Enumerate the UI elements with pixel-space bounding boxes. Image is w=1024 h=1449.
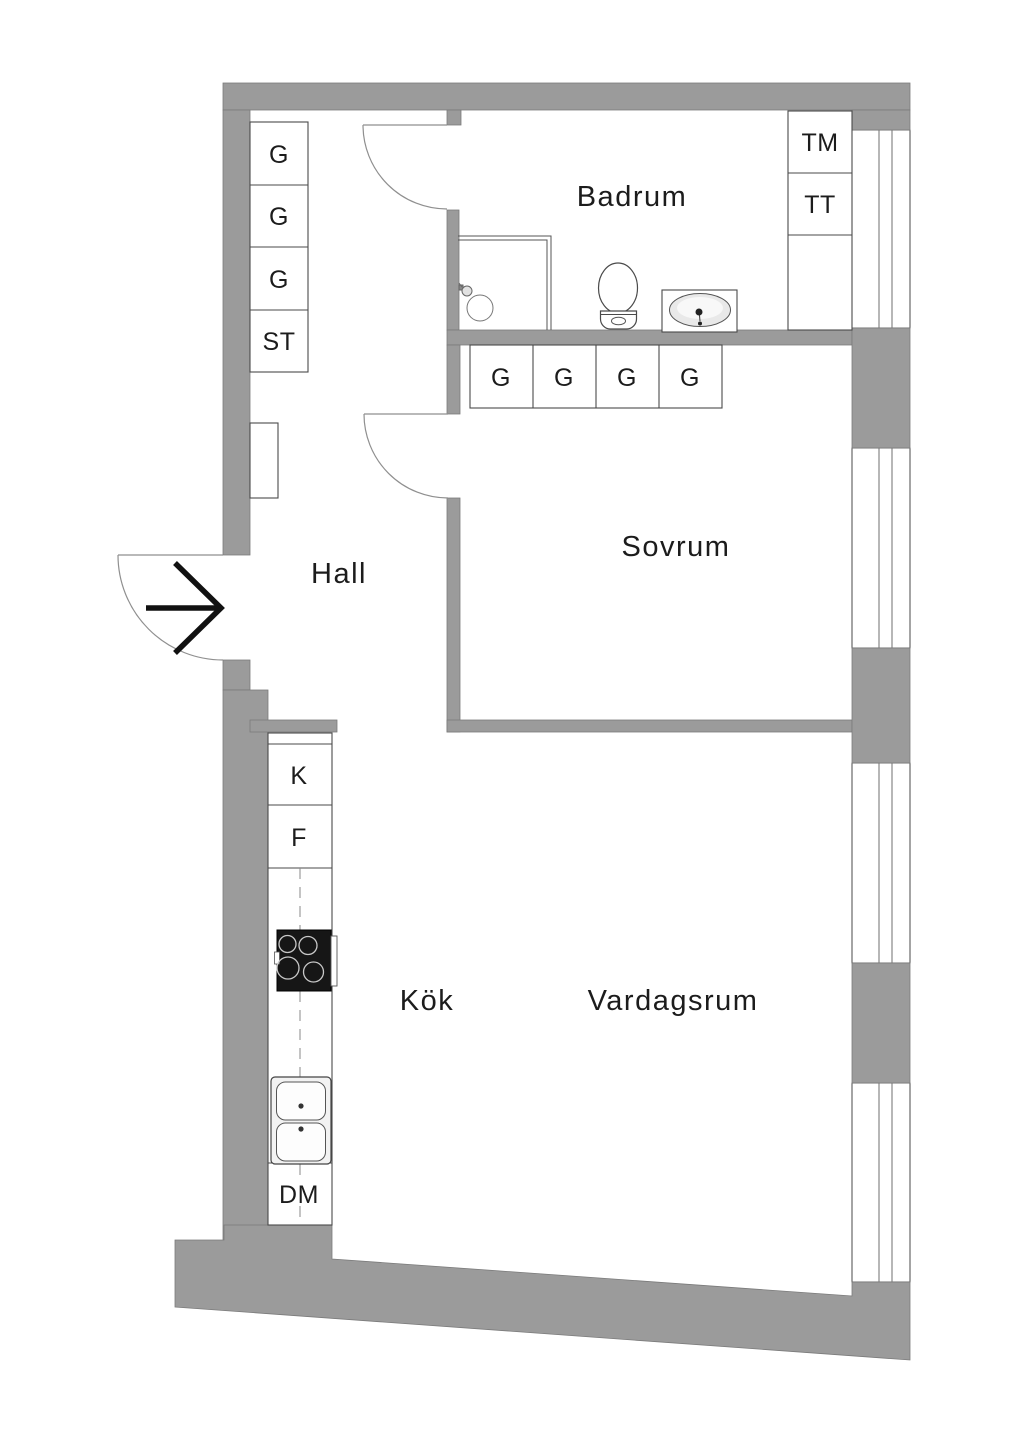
toilet-icon <box>599 263 638 329</box>
laundry-label-tt: TT <box>804 191 836 219</box>
wall-top-right-corner <box>852 110 910 130</box>
hall-closet-label-2: G <box>269 203 289 231</box>
wall-pier-right-3 <box>852 963 910 1083</box>
bedroom-door <box>364 414 448 498</box>
stove-handle <box>331 936 337 986</box>
sink-tap <box>298 1103 303 1108</box>
hall-closet-label-3: G <box>269 266 289 294</box>
kitchen-label-f: F <box>291 824 307 852</box>
wall-left-upper <box>223 110 250 555</box>
wall-left-lower <box>223 690 268 1240</box>
stove-icon <box>275 930 338 991</box>
kitchen-label-dm: DM <box>279 1181 319 1209</box>
wall-bedroom-lower <box>447 498 460 732</box>
room-label-hall: Hall <box>311 558 367 590</box>
window-right-3 <box>852 763 910 963</box>
wall-bedroom-floor <box>447 720 852 732</box>
shower-drain <box>467 295 493 321</box>
shower-icon <box>458 236 551 330</box>
floor-plan: Badrum Sovrum Hall Kök Vardagsrum G G G … <box>0 0 1024 1449</box>
floor-plan-canvas: Badrum Sovrum Hall Kök Vardagsrum G G G … <box>0 0 1024 1449</box>
wall-pier-right-1 <box>852 328 910 448</box>
window-right-2 <box>852 448 910 648</box>
wall-bathroom-floor <box>447 330 852 345</box>
kitchen-sink-icon <box>271 1077 331 1164</box>
room-label-kok: Kök <box>400 985 454 1017</box>
window-right-1 <box>852 130 910 328</box>
washbasin-icon <box>662 290 737 332</box>
hall-closet-label-1: G <box>269 141 289 169</box>
sovrum-closet-label-2: G <box>554 364 574 392</box>
wall-kitchen-stub <box>250 720 337 732</box>
wall-pier-right-2 <box>852 648 910 763</box>
wall-left-below-entry <box>223 660 250 690</box>
hall-closet-label-4: ST <box>263 328 296 356</box>
washbasin-tap <box>696 309 703 316</box>
wall-bathroom-door-stub <box>447 110 461 125</box>
radiator <box>250 423 278 498</box>
laundry-label-tm: TM <box>801 129 838 157</box>
bathroom-door <box>363 125 447 209</box>
kitchen-label-k: K <box>290 762 307 790</box>
sovrum-closet-label-1: G <box>491 364 511 392</box>
shower-head <box>459 283 472 296</box>
wall-top <box>223 83 910 110</box>
room-label-sovrum: Sovrum <box>622 531 731 563</box>
window-right-4 <box>852 1083 910 1282</box>
entry-direction-arrow <box>146 563 221 653</box>
sink-tap <box>298 1126 303 1131</box>
wall-bathroom-hall <box>447 210 459 330</box>
wall-bedroom-upper <box>447 345 460 414</box>
room-label-badrum: Badrum <box>577 181 688 213</box>
wall-bottom-band <box>175 1225 910 1360</box>
room-label-vardagsrum: Vardagsrum <box>588 985 759 1017</box>
sovrum-closet-label-3: G <box>617 364 637 392</box>
sovrum-closet-label-4: G <box>680 364 700 392</box>
